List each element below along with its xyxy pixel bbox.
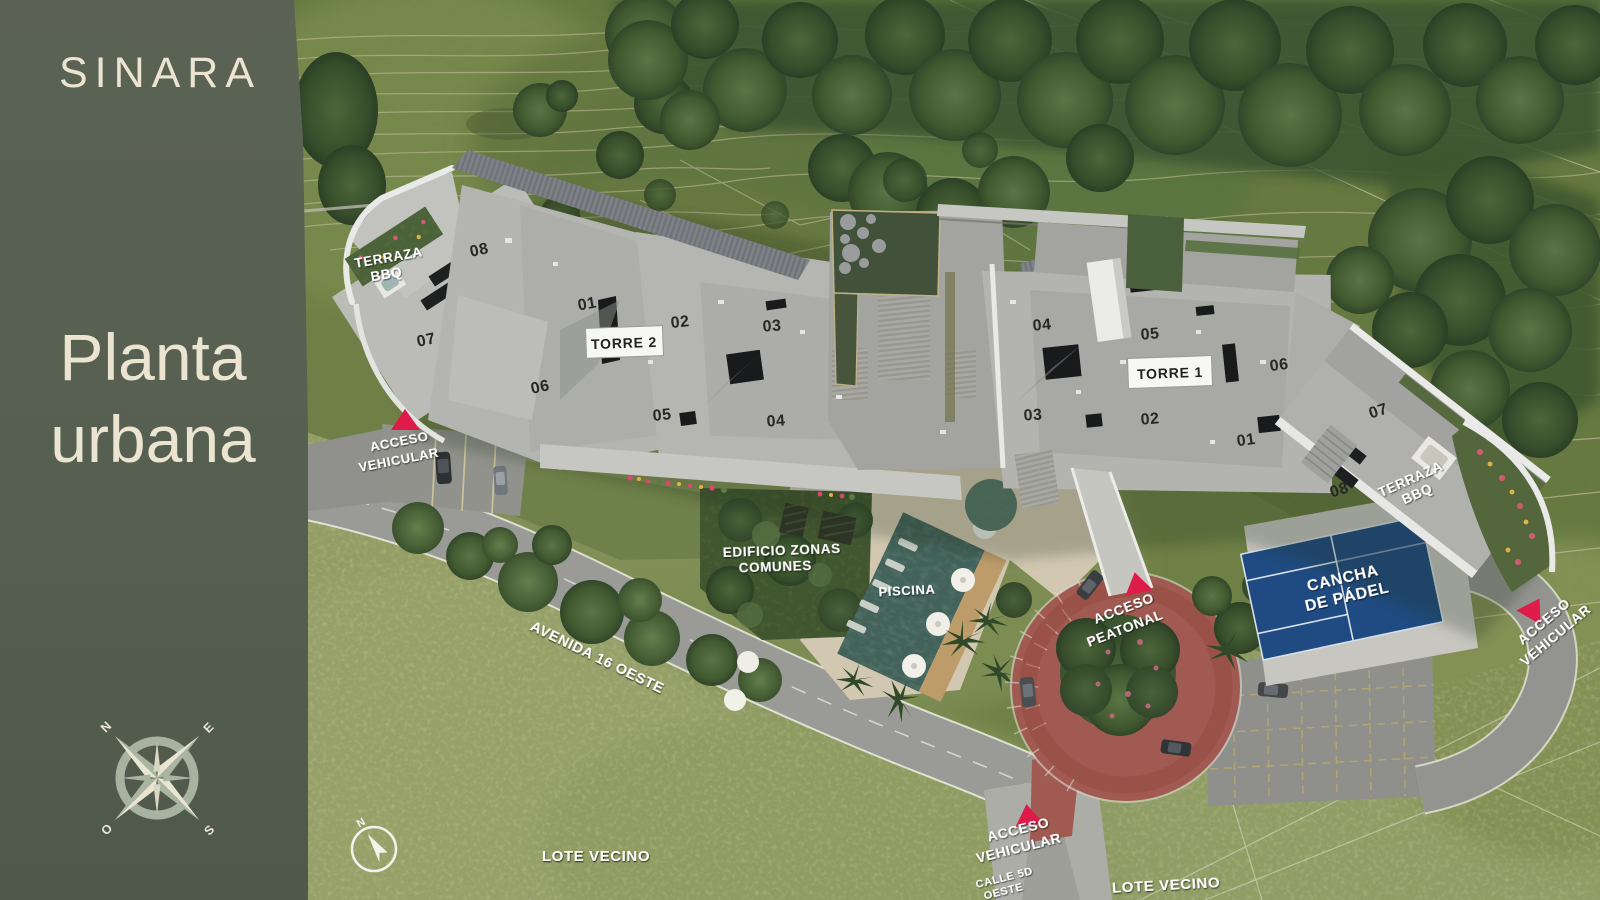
svg-text:03: 03 xyxy=(1023,407,1043,425)
svg-text:01: 01 xyxy=(1236,431,1257,450)
svg-text:urbana: urbana xyxy=(50,402,256,476)
svg-text:SINARA: SINARA xyxy=(59,49,261,97)
svg-text:Planta: Planta xyxy=(59,320,246,394)
svg-text:PISCINA: PISCINA xyxy=(878,582,936,600)
svg-text:TORRE 1: TORRE 1 xyxy=(1137,364,1204,382)
svg-text:COMUNES: COMUNES xyxy=(738,558,812,576)
svg-text:06: 06 xyxy=(1269,356,1290,375)
svg-text:TORRE 2: TORRE 2 xyxy=(591,334,658,352)
svg-text:02: 02 xyxy=(1140,410,1160,429)
svg-text:01: 01 xyxy=(577,294,598,314)
svg-text:LOTE VECINO: LOTE VECINO xyxy=(542,848,650,865)
svg-text:03: 03 xyxy=(762,317,782,335)
svg-text:02: 02 xyxy=(670,313,690,332)
svg-text:04: 04 xyxy=(766,412,786,430)
svg-text:05: 05 xyxy=(1140,325,1160,344)
svg-text:04: 04 xyxy=(1032,316,1052,335)
svg-text:05: 05 xyxy=(652,406,672,425)
